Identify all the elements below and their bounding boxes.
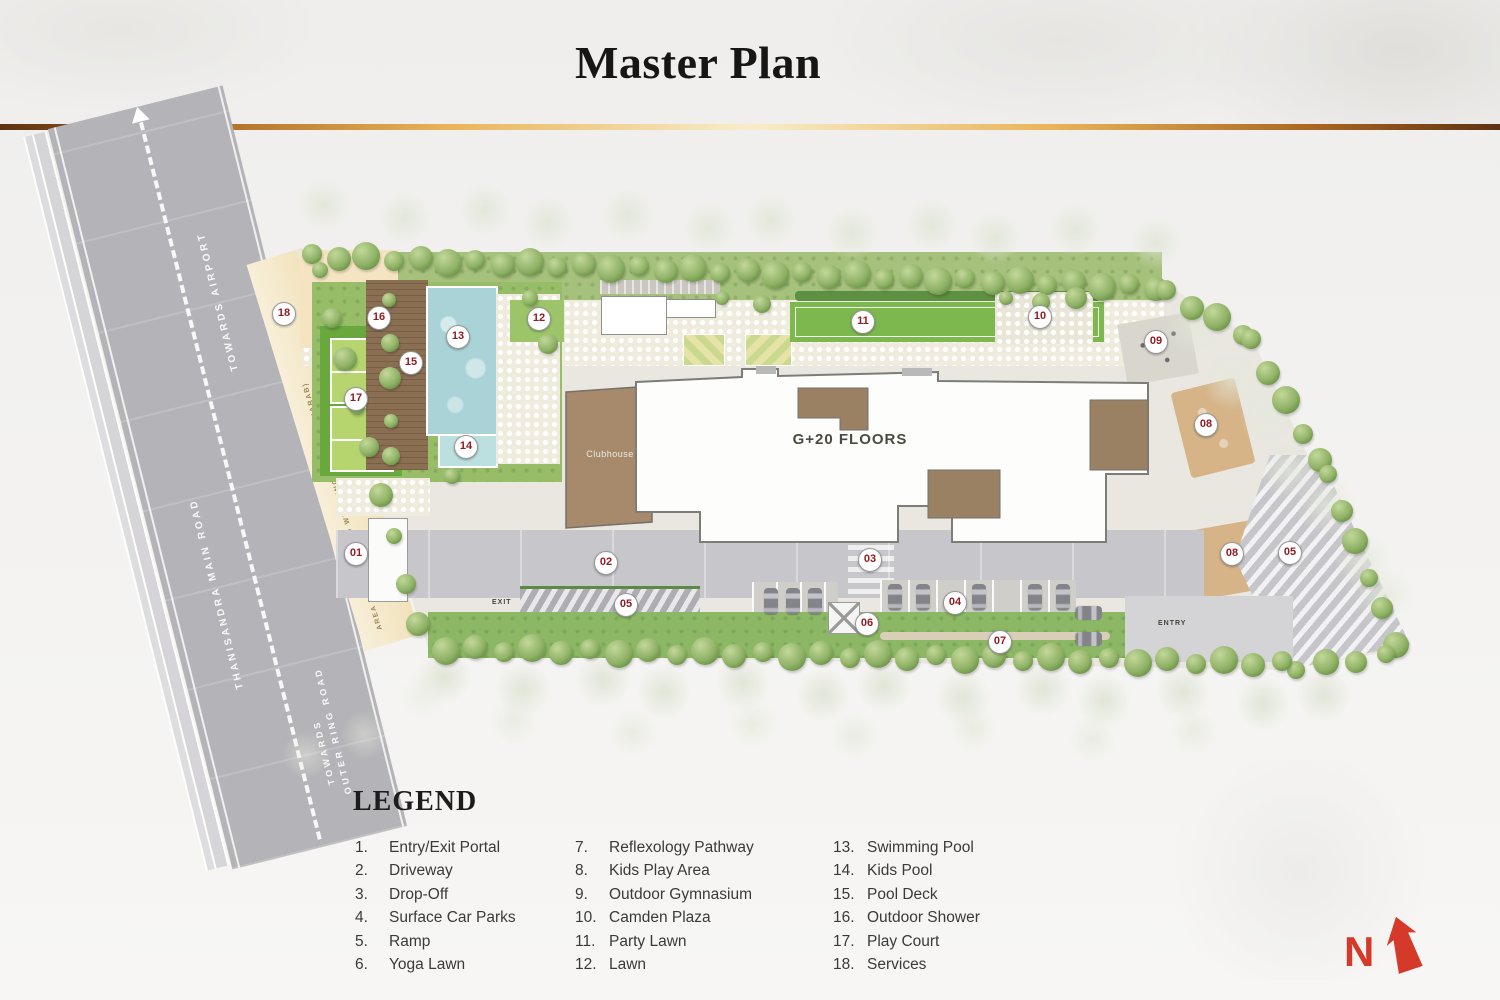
tree-icon (999, 291, 1013, 305)
tree-icon (778, 643, 806, 671)
tree-icon (736, 258, 760, 282)
legend-item-number: 9. (575, 886, 609, 904)
legend-item-label: Lawn (609, 956, 646, 974)
legend-column-2: 7.Reflexology Pathway8.Kids Play Area9.O… (575, 836, 830, 977)
tree-icon (761, 261, 789, 289)
forest-wash (1170, 707, 1218, 755)
tree-icon (1068, 650, 1092, 674)
forest-wash (1049, 204, 1101, 256)
tree-icon (1293, 424, 1313, 444)
legend-item: 3.Drop-Off (355, 883, 570, 907)
tree-icon (629, 256, 649, 276)
legend-item: 14.Kids Pool (833, 860, 1063, 884)
clubhouse-label: Clubhouse (573, 449, 647, 459)
legend-item-number: 11. (575, 933, 609, 951)
parked-car-icon (1028, 584, 1042, 610)
legend-item: 18.Services (833, 954, 1063, 978)
legend-item-number: 12. (575, 956, 609, 974)
legend-item: 13.Swimming Pool (833, 836, 1063, 860)
tree-icon (1319, 465, 1337, 483)
legend-item-number: 8. (575, 862, 609, 880)
legend-column-3: 13.Swimming Pool14.Kids Pool15.Pool Deck… (833, 836, 1063, 977)
tree-icon (1180, 296, 1204, 320)
building-floors-label: G+20 FLOORS (770, 431, 930, 448)
forest-wash (1069, 715, 1117, 763)
parked-car-icon (764, 588, 778, 614)
legend-item-number: 6. (355, 956, 389, 974)
forest-wash (379, 192, 431, 244)
master-plan-page: Master Plan TOWARDS AIRPORT THANISANDRA … (0, 0, 1500, 1000)
tree-icon (384, 251, 404, 271)
legend-item-label: Reflexology Pathway (609, 839, 754, 857)
tree-icon (843, 260, 871, 288)
legend-item-label: Party Lawn (609, 933, 687, 951)
legend-item-number: 16. (833, 909, 867, 927)
legend-column-1: 1.Entry/Exit Portal2.Driveway3.Drop-Off4… (355, 836, 570, 977)
tree-icon (753, 295, 771, 313)
legend-item-label: Entry/Exit Portal (389, 839, 500, 857)
parked-car-icon (786, 588, 800, 614)
legend-item-label: Kids Pool (867, 862, 932, 880)
plan-marker-05: 05 (1278, 541, 1302, 565)
plan-marker-06: 06 (855, 612, 879, 636)
tree-icon (895, 647, 919, 671)
tree-icon (382, 447, 400, 465)
tree-icon (715, 291, 729, 305)
forest-wash (969, 212, 1021, 264)
legend-item-label: Swimming Pool (867, 839, 974, 857)
entry-label: ENTRY (1158, 620, 1186, 627)
legend-item: 5.Ramp (355, 930, 570, 954)
legend-item-number: 1. (355, 839, 389, 857)
legend-item-label: Services (867, 956, 926, 974)
legend-item-label: Outdoor Gymnasium (609, 886, 752, 904)
forest-wash (298, 179, 350, 231)
tree-icon (1099, 648, 1119, 668)
tree-icon (516, 248, 544, 276)
legend-item: 8.Kids Play Area (575, 860, 830, 884)
forest-wash (1297, 668, 1351, 722)
legend-item-label: Ramp (389, 933, 430, 951)
road-label-towards-airport: TOWARDS AIRPORT (170, 127, 241, 372)
legend-item: 12.Lawn (575, 954, 830, 978)
plan-marker-08: 08 (1194, 413, 1218, 437)
yoga-stripe-patch-1 (683, 334, 725, 366)
tree-icon (636, 638, 660, 662)
forest-wash (609, 709, 657, 757)
tree-icon (924, 267, 952, 295)
forest-wash (282, 731, 330, 779)
legend-item: 17.Play Court (833, 930, 1063, 954)
tree-icon (874, 269, 894, 289)
plan-marker-12: 12 (527, 307, 551, 331)
legend-item-number: 2. (355, 862, 389, 880)
legend-item-label: Surface Car Parks (389, 909, 516, 927)
tree-icon (1156, 280, 1176, 300)
tree-icon (1345, 651, 1367, 673)
legend-item: 1.Entry/Exit Portal (355, 836, 570, 860)
tree-icon (1037, 275, 1057, 295)
forest-wash (522, 197, 574, 249)
plan-marker-11: 11 (851, 310, 875, 334)
forest-wash (830, 712, 878, 760)
tree-icon (1272, 651, 1292, 671)
tree-icon (444, 468, 460, 484)
tree-icon (1256, 361, 1280, 385)
legend-item-number: 13. (833, 839, 867, 857)
legend-item: 4.Surface Car Parks (355, 907, 570, 931)
tree-icon (359, 437, 379, 457)
tree-icon (1124, 649, 1152, 677)
forest-wash (602, 189, 654, 241)
tree-icon (333, 347, 357, 371)
parked-car-icon (972, 584, 986, 610)
legend-item-number: 7. (575, 839, 609, 857)
tree-icon (381, 334, 399, 352)
tree-icon (409, 246, 433, 270)
entry-road (1125, 596, 1293, 662)
tree-icon (1065, 287, 1087, 309)
forest-wash (637, 665, 691, 719)
forest-wash (683, 202, 735, 254)
plan-marker-16: 16 (367, 306, 391, 330)
tree-icon (1241, 653, 1265, 677)
legend-item-number: 5. (355, 933, 389, 951)
plan-marker-17: 17 (344, 387, 368, 411)
tree-icon (1119, 274, 1139, 294)
tree-icon (547, 257, 567, 277)
legend-item-label: Kids Play Area (609, 862, 710, 880)
exit-label: EXIT (492, 599, 512, 606)
parked-car-icon (916, 584, 930, 610)
tree-icon (722, 644, 746, 668)
amenity-building (601, 296, 667, 335)
parked-car-icon (1076, 632, 1102, 646)
legend-item: 16.Outdoor Shower (833, 907, 1063, 931)
tree-icon (302, 244, 322, 264)
tree-icon (840, 648, 860, 668)
tree-icon (1210, 646, 1238, 674)
tree-icon (1331, 500, 1353, 522)
forest-wash (729, 700, 777, 748)
north-label: N (1344, 928, 1374, 976)
legend-item-label: Drop-Off (389, 886, 448, 904)
forest-wash (1130, 217, 1182, 269)
tree-icon (1155, 647, 1179, 671)
tree-icon (654, 259, 678, 283)
tree-icon (899, 264, 923, 288)
legend-item-label: Pool Deck (867, 886, 938, 904)
tree-icon (679, 254, 707, 282)
tree-icon (396, 574, 416, 594)
legend-item-number: 17. (833, 933, 867, 951)
legend-title: LEGEND (353, 786, 477, 818)
legend-item: 7.Reflexology Pathway (575, 836, 830, 860)
plan-marker-08: 08 (1220, 542, 1244, 566)
plan-marker-03: 03 (858, 548, 882, 572)
tree-icon (434, 249, 462, 277)
tree-icon (1037, 643, 1065, 671)
tree-icon (1313, 649, 1339, 675)
forest-wash (906, 199, 958, 251)
legend-item-label: Outdoor Shower (867, 909, 980, 927)
tree-icon (522, 290, 538, 306)
page-title: Master Plan (0, 36, 1396, 89)
tree-icon (1186, 654, 1206, 674)
tree-icon (494, 642, 514, 662)
swimming-pool-area (426, 286, 498, 436)
tree-icon (1241, 329, 1261, 349)
tree-icon (809, 641, 833, 665)
forest-wash (490, 697, 538, 745)
plan-marker-14: 14 (454, 435, 478, 459)
forest-wash (796, 668, 850, 722)
legend-item-label: Play Court (867, 933, 939, 951)
legend-item-number: 15. (833, 886, 867, 904)
legend-item-label: Driveway (389, 862, 453, 880)
tree-icon (1342, 528, 1368, 554)
tree-icon (1013, 651, 1033, 671)
legend-item-label: Yoga Lawn (389, 956, 465, 974)
tree-icon (1088, 273, 1116, 301)
tree-icon (951, 646, 979, 674)
legend-item: 2.Driveway (355, 860, 570, 884)
parked-car-icon (1056, 584, 1070, 610)
parked-car-icon (888, 584, 902, 610)
tree-icon (518, 634, 546, 662)
forest-wash (459, 184, 511, 236)
plan-marker-07: 07 (988, 630, 1012, 654)
legend-item-number: 3. (355, 886, 389, 904)
legend-item: 15.Pool Deck (833, 883, 1063, 907)
forest-wash (745, 194, 797, 246)
tree-icon (491, 253, 515, 277)
legend-item-number: 18. (833, 956, 867, 974)
plan-marker-02: 02 (594, 551, 618, 575)
legend-item-number: 10. (575, 909, 609, 927)
tree-icon (1371, 597, 1393, 619)
tree-icon (1006, 266, 1034, 294)
legend-item-number: 4. (355, 909, 389, 927)
plan-marker-18: 18 (272, 302, 296, 326)
legend-item: 9.Outdoor Gymnasium (575, 883, 830, 907)
tree-icon (605, 640, 633, 668)
forest-wash (1236, 677, 1290, 731)
plan-marker-15: 15 (399, 351, 423, 375)
yoga-stripe-patch-2 (745, 334, 792, 366)
tree-icon (538, 334, 558, 354)
road-center-dashed-line (139, 122, 322, 840)
plan-marker-01: 01 (344, 542, 368, 566)
plan-marker-09: 09 (1144, 330, 1168, 354)
forest-wash (949, 704, 997, 752)
tree-icon (432, 637, 460, 665)
plan-marker-13: 13 (446, 325, 470, 349)
pergola-structure (600, 280, 720, 294)
tree-icon (667, 645, 687, 665)
tree-icon (382, 293, 396, 307)
legend-item: 10.Camden Plaza (575, 907, 830, 931)
tree-icon (691, 637, 719, 665)
parked-car-icon (1076, 606, 1102, 620)
plan-marker-05: 05 (614, 593, 638, 617)
tree-icon (549, 641, 573, 665)
legend-item: 11.Party Lawn (575, 930, 830, 954)
tree-icon (386, 528, 402, 544)
tree-icon (792, 262, 812, 282)
legend-item-number: 14. (833, 862, 867, 880)
forest-wash (826, 207, 878, 259)
forest-wash (341, 711, 389, 759)
amenity-building-wing (666, 299, 716, 318)
tree-icon (406, 612, 430, 636)
tree-icon (379, 367, 401, 389)
north-arrow-icon (1373, 907, 1434, 982)
plan-marker-04: 04 (943, 591, 967, 615)
forest-wash (400, 671, 448, 719)
tree-icon (312, 262, 328, 278)
parked-car-icon (808, 588, 822, 614)
tree-icon (1272, 386, 1300, 414)
legend-item: 6.Yoga Lawn (355, 954, 570, 978)
legend-item-label: Camden Plaza (609, 909, 711, 927)
plan-marker-10: 10 (1028, 305, 1052, 329)
tree-icon (384, 414, 398, 428)
tree-icon (1360, 569, 1378, 587)
road-direction-arrow-icon (128, 105, 149, 124)
tree-icon (1377, 645, 1395, 663)
